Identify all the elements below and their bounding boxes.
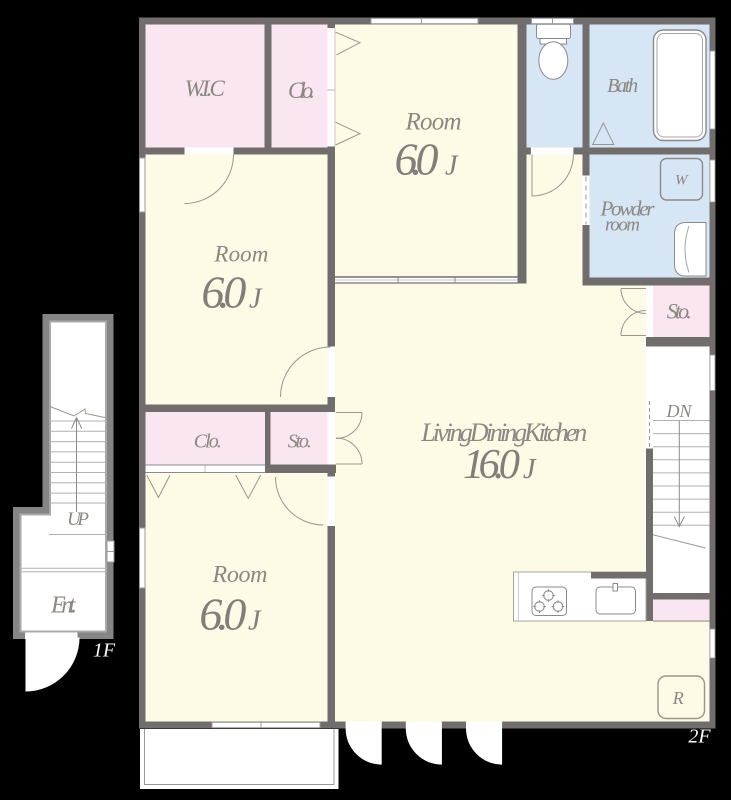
svg-text:Room: Room <box>405 109 462 136</box>
svg-text:Room: Room <box>212 562 268 588</box>
svg-text:R: R <box>672 688 684 708</box>
svg-text:DN: DN <box>665 401 692 421</box>
svg-text:Sto.: Sto. <box>288 431 312 453</box>
svg-text:2F: 2F <box>688 726 711 748</box>
svg-text:16.0: 16.0 <box>463 441 520 488</box>
svg-text:6.0: 6.0 <box>395 134 439 185</box>
svg-text:Sto.: Sto. <box>667 299 692 324</box>
svg-text:6.0: 6.0 <box>199 589 246 640</box>
svg-text:J: J <box>249 284 263 315</box>
svg-text:Clo.: Clo. <box>288 78 315 103</box>
svg-text:J: J <box>523 454 537 485</box>
svg-text:Room: Room <box>213 242 268 267</box>
svg-text:J: J <box>445 151 459 182</box>
svg-text:J: J <box>248 606 262 637</box>
svg-text:6.0: 6.0 <box>201 267 246 318</box>
svg-text:W.I.C: W.I.C <box>185 76 226 101</box>
svg-text:Ent.: Ent. <box>50 593 77 619</box>
svg-text:1F: 1F <box>93 640 116 662</box>
svg-text:UP: UP <box>67 509 89 530</box>
svg-text:Clo.: Clo. <box>194 431 222 453</box>
svg-text:W: W <box>675 173 689 189</box>
svg-text:room: room <box>605 215 640 236</box>
svg-text:Bath: Bath <box>607 75 638 97</box>
